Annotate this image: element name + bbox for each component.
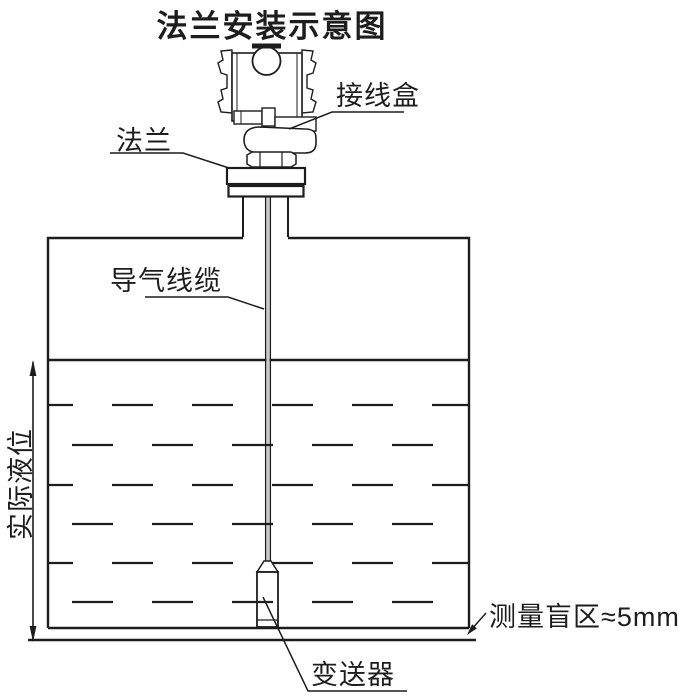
- swivel-joint: [244, 127, 316, 153]
- air-cable-label: 导气线缆: [110, 266, 222, 296]
- transmitter-label: 变送器: [311, 660, 395, 690]
- conduit-fitting: [234, 111, 262, 124]
- flange-plate-lower: [229, 186, 304, 197]
- conduit-block: [262, 108, 275, 126]
- page-title: 法兰安装示意图: [157, 9, 388, 44]
- housing-cap: [253, 47, 281, 75]
- diagram-canvas: 法兰安装示意图 接线盒 法兰 导气线缆 实际液位 变送器 测量盲区≈5mm: [0, 0, 700, 700]
- blind-zone-label: 测量盲区≈5mm: [489, 602, 680, 632]
- actual-level-label: 实际液位: [6, 428, 36, 540]
- flange-label: 法兰: [116, 126, 172, 156]
- housing-lug-left: [218, 50, 232, 113]
- probe-body: [257, 572, 278, 627]
- arrow-up-icon: [30, 360, 37, 376]
- tank: [28, 238, 476, 640]
- housing-lug-right: [302, 50, 316, 113]
- air-cable-leader: [145, 297, 264, 309]
- housing-cap-bar: [252, 44, 281, 49]
- transmitter-probe: [257, 561, 278, 627]
- hex-nut: [247, 152, 296, 167]
- flange-plate-upper: [227, 168, 305, 184]
- junction-box-label: 接线盒: [336, 81, 420, 111]
- leader-lines: [110, 112, 486, 691]
- air-cable-line: [266, 196, 271, 566]
- flange-installation-diagram: 法兰安装示意图 接线盒 法兰 导气线缆 实际液位 变送器 测量盲区≈5mm: [0, 0, 700, 700]
